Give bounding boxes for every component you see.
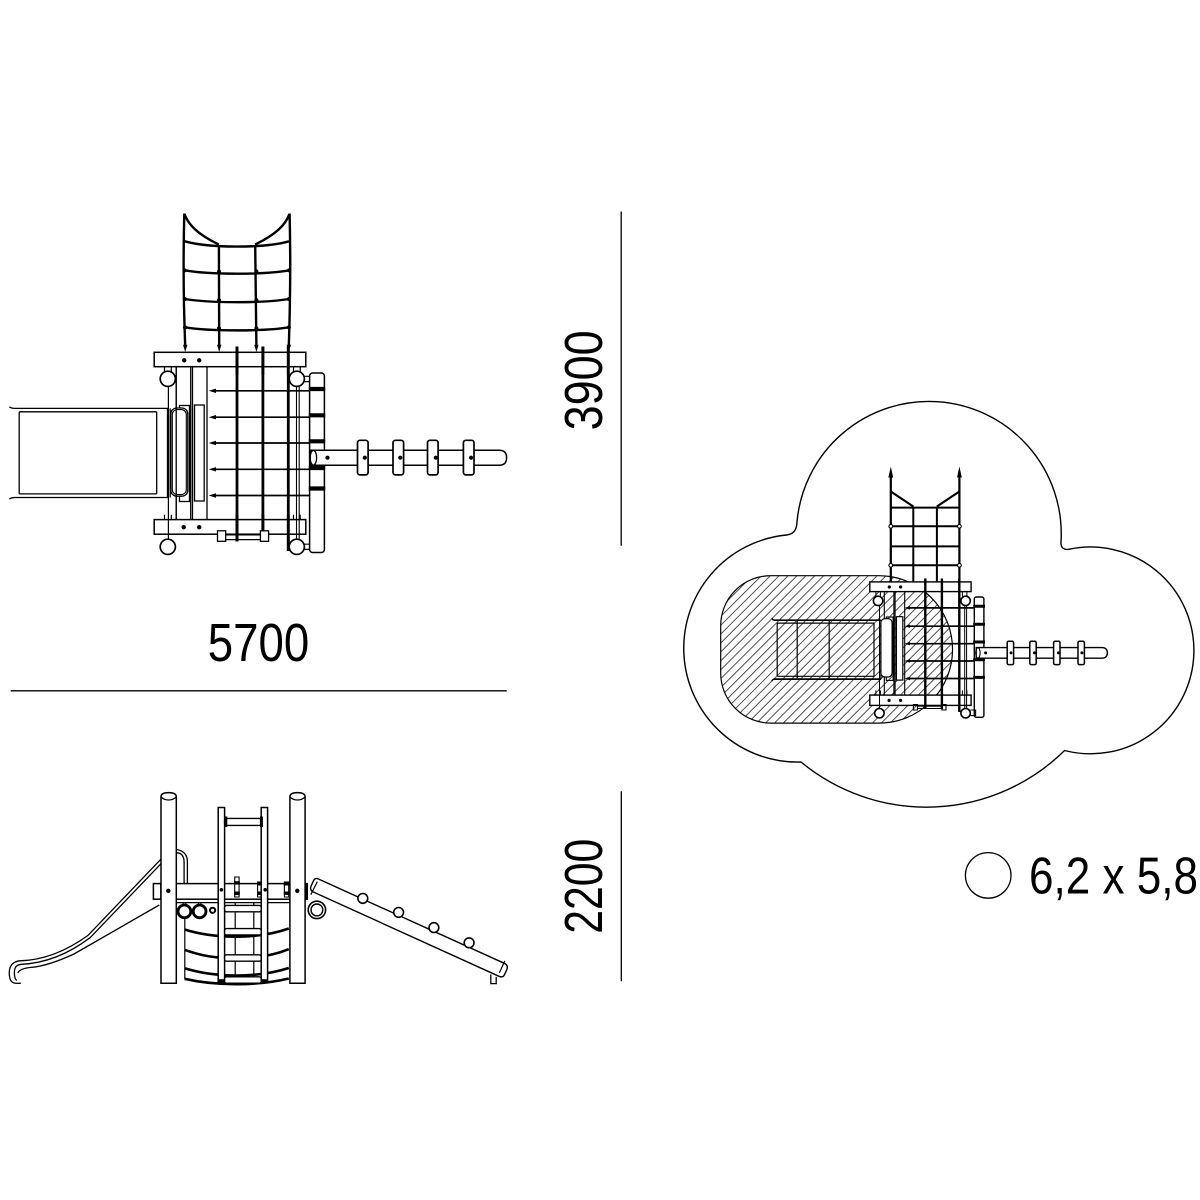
svg-text:3900: 3900 [554,330,614,430]
svg-text:5700: 5700 [208,613,310,673]
svg-text:6,2 x 5,8: 6,2 x 5,8 [1029,848,1198,906]
svg-text:2200: 2200 [554,839,614,934]
